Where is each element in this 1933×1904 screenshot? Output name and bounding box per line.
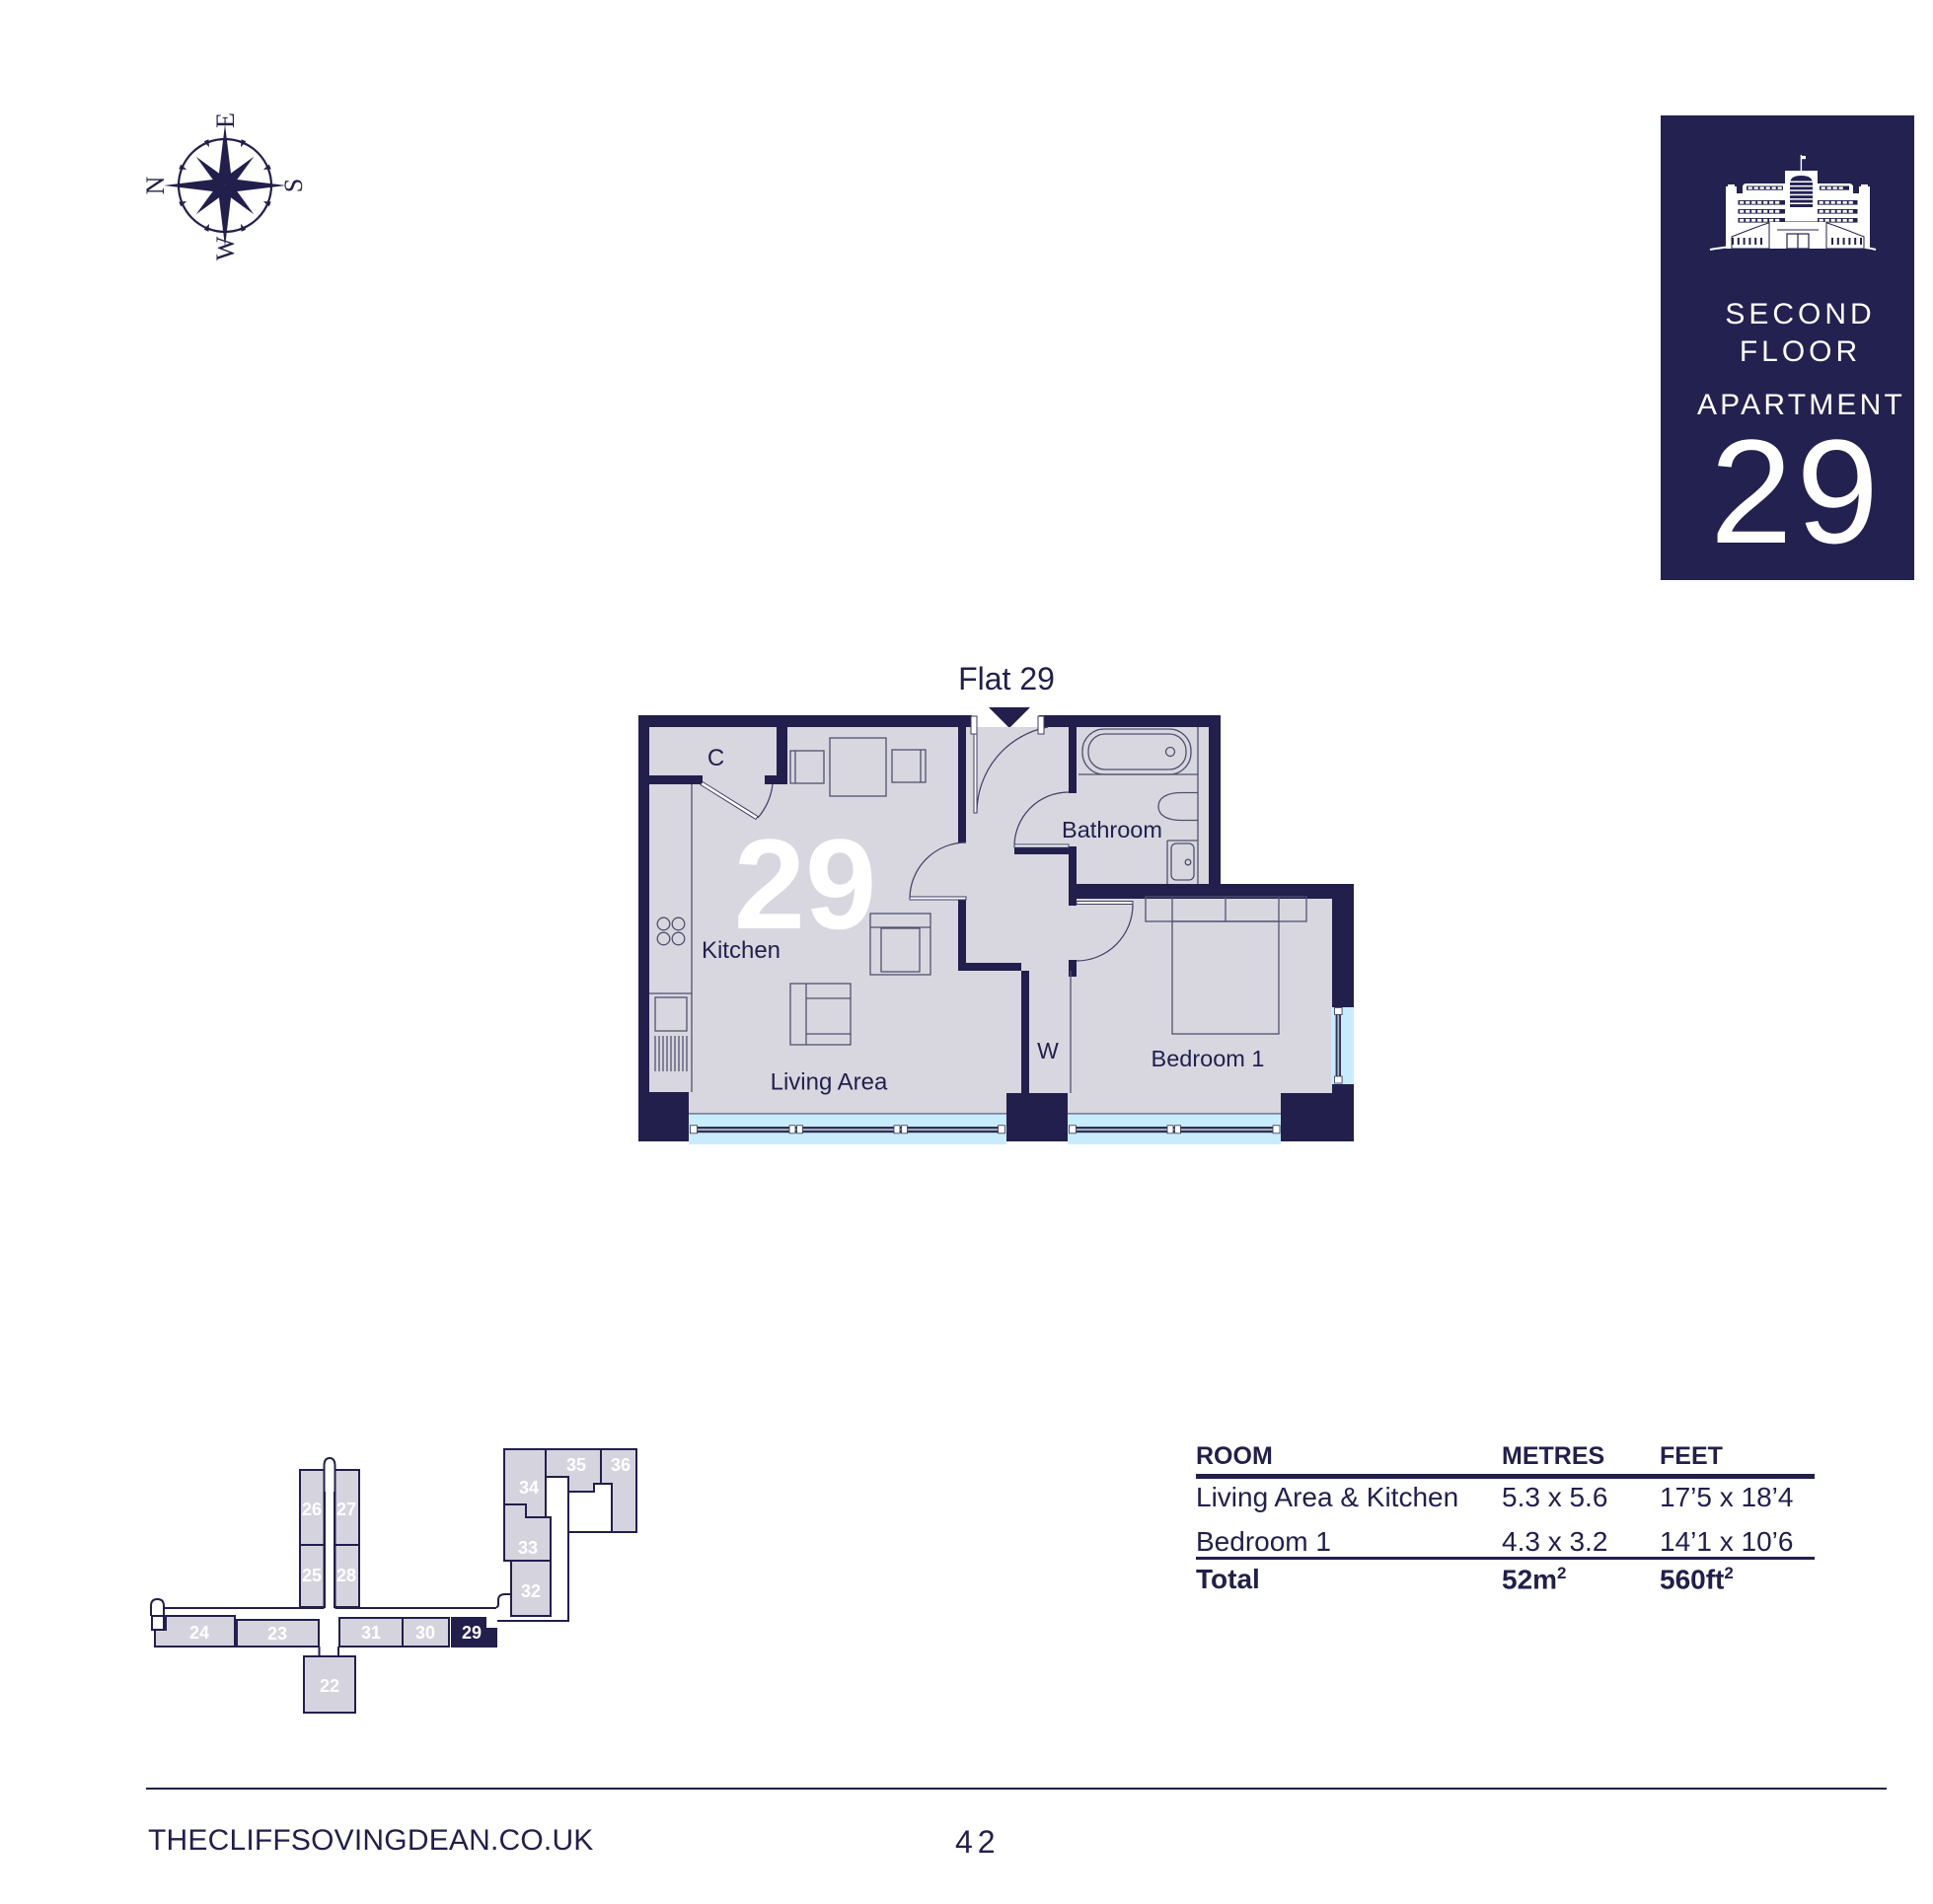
svg-text:25: 25 — [302, 1566, 322, 1585]
svg-text:27: 27 — [336, 1500, 356, 1519]
svg-text:Flat 29: Flat 29 — [958, 661, 1055, 696]
svg-text:S: S — [279, 179, 308, 192]
svg-text:24: 24 — [189, 1623, 209, 1643]
svg-text:32: 32 — [521, 1581, 541, 1601]
svg-text:23: 23 — [267, 1624, 287, 1644]
svg-text:E: E — [211, 112, 240, 128]
svg-text:Bathroom: Bathroom — [1062, 817, 1162, 842]
svg-text:36: 36 — [611, 1455, 631, 1475]
svg-text:26: 26 — [302, 1500, 322, 1519]
svg-text:Living Area: Living Area — [771, 1069, 888, 1096]
svg-text:31: 31 — [361, 1623, 381, 1643]
svg-text:30: 30 — [415, 1623, 435, 1643]
svg-text:22: 22 — [320, 1676, 339, 1696]
svg-text:29: 29 — [734, 812, 877, 956]
svg-text:Bedroom 1: Bedroom 1 — [1152, 1046, 1265, 1071]
svg-text:Kitchen: Kitchen — [702, 937, 781, 964]
svg-text:N: N — [141, 176, 170, 194]
svg-text:C: C — [707, 745, 724, 771]
svg-text:29: 29 — [462, 1623, 482, 1643]
svg-text:W: W — [1037, 1038, 1059, 1063]
svg-text:33: 33 — [518, 1538, 538, 1558]
svg-text:34: 34 — [519, 1478, 539, 1498]
svg-text:28: 28 — [336, 1566, 356, 1585]
svg-text:35: 35 — [566, 1455, 586, 1475]
svg-text:W: W — [211, 236, 240, 260]
